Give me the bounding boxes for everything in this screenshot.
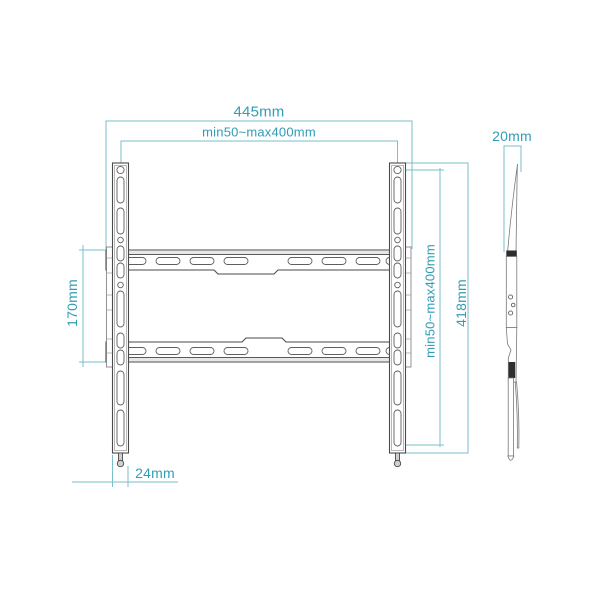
wall-mount-dimension-diagram: 445mm min50~max400mm 170mm min50~max400m…	[0, 0, 600, 600]
technical-drawing	[0, 0, 600, 600]
front-view	[106, 163, 411, 467]
dim-rail-span-label: 170mm	[64, 279, 80, 327]
right-vesa-arm	[390, 163, 406, 467]
dim-profile-depth-label: 20mm	[492, 128, 532, 144]
side-hook-cap	[506, 251, 517, 257]
left-hook-strip	[107, 247, 113, 367]
dim-overall-width-lines	[106, 121, 412, 249]
side-view	[506, 164, 519, 460]
dim-overall-height-label: 418mm	[453, 279, 469, 327]
dim-foot-offset-label: 24mm	[135, 465, 175, 481]
top-rail	[106, 250, 410, 274]
side-lock-block	[509, 362, 516, 378]
side-blade-lower	[515, 382, 519, 448]
side-rod-tip	[508, 456, 514, 460]
dim-vesa-width-lines	[121, 141, 398, 167]
side-blade-upper	[508, 164, 518, 252]
dim-vesa-height-label: min50~max400mm	[423, 244, 438, 358]
side-rod	[508, 378, 513, 456]
left-vesa-arm	[113, 163, 129, 467]
side-wall-plate	[506, 257, 517, 328]
bottom-rail	[106, 338, 410, 362]
dim-overall-width-label: 445mm	[233, 104, 284, 121]
dim-vesa-width-label: min50~max400mm	[202, 125, 316, 140]
